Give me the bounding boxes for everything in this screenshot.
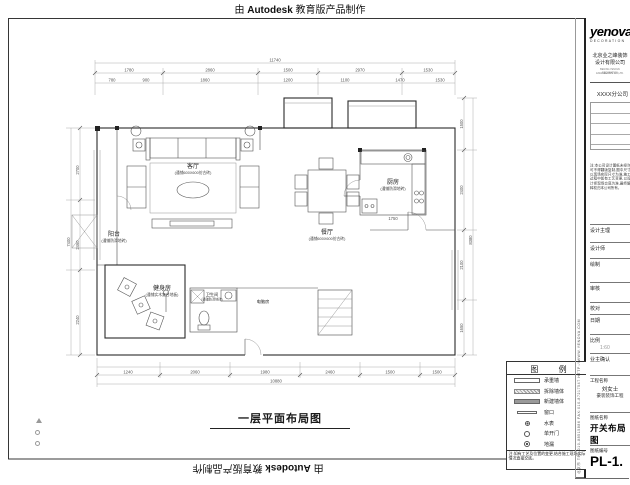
company-name-cn: 北京业之峰装饰 <box>590 52 630 59</box>
svg-text:(通铺600X600仿古砖): (通铺600X600仿古砖) <box>309 236 346 241</box>
field-proofread: 校对 <box>590 302 630 312</box>
stamp-text: 教育版产品制作 <box>293 5 366 16</box>
stairs <box>318 290 352 335</box>
svg-text:1240: 1240 <box>123 370 133 375</box>
stamp-text: 由 <box>311 462 324 473</box>
drawing-number-value: PL-1. <box>590 454 630 469</box>
field-designer: 设计师 <box>590 242 630 252</box>
dining-room-furniture <box>295 158 359 224</box>
svg-text:2700: 2700 <box>75 165 80 175</box>
living-room-furniture <box>127 126 259 228</box>
disclaimer-note: 注:本公司设计图纸未经许可不得翻版复制,图中尺寸以现场实际尺寸为准,施工过程中如… <box>590 164 630 191</box>
single-door-icon <box>510 431 544 437</box>
bathroom-fixtures <box>191 290 236 330</box>
scale-value: 1:60 <box>600 345 630 351</box>
branch-name: XXXX分公司 <box>590 90 630 98</box>
field-date: 日期 <box>590 314 630 324</box>
svg-text:1980: 1980 <box>260 370 270 375</box>
dimension-lines <box>66 60 477 387</box>
svg-text:(通铺实木复合地板): (通铺实木复合地板) <box>146 292 180 297</box>
svg-text:2460: 2460 <box>325 370 335 375</box>
room-label-gym: 健身房 <box>153 284 171 292</box>
field-scale: 比例 <box>590 334 630 344</box>
company-logo-sub: DECORATION <box>590 39 630 43</box>
stamp-brand: Autodesk <box>265 462 311 473</box>
field-owner-confirm: 业主确认 <box>590 353 630 363</box>
svg-text:10880: 10880 <box>270 379 282 384</box>
svg-text:1500: 1500 <box>385 370 395 375</box>
gym-equipment <box>118 278 169 330</box>
svg-text:1200: 1200 <box>283 78 293 83</box>
drawing-number-label: 图纸编号 <box>590 445 630 454</box>
divider <box>590 82 630 83</box>
window-swatch <box>510 411 544 414</box>
revision-table <box>590 102 630 150</box>
svg-text:11740: 11740 <box>269 58 281 63</box>
svg-text:2400: 2400 <box>459 185 464 195</box>
corner-mark-circle <box>35 430 40 435</box>
autodesk-stamp-bottom: 由 Autodesk 教育版产品制作 <box>178 462 338 477</box>
drawing-name-label: 图纸名称 <box>590 412 630 421</box>
floor-drain-icon <box>510 441 544 447</box>
room-label-living: 客厅 <box>187 162 199 170</box>
autodesk-stamp-top: 由 Autodesk 教育版产品制作 <box>0 1 600 16</box>
room-label-balcony: 阳台 <box>108 230 120 238</box>
svg-text:2970: 2970 <box>355 68 365 73</box>
plan-title: 一层平面布局图 <box>210 410 350 429</box>
demolish-wall-swatch <box>510 389 544 394</box>
room-label-bath: 卫生间 <box>206 291 219 298</box>
corner-mark-circle <box>35 441 40 446</box>
svg-text:2860: 2860 <box>205 68 215 73</box>
svg-text:900: 900 <box>143 78 151 83</box>
svg-text:1470: 1470 <box>395 78 405 83</box>
corner-mark-triangle <box>36 418 42 423</box>
room-labels: 客厅 (通铺600X600仿古砖) 餐厅 (通铺600X600仿古砖) 厨房 (… <box>101 162 406 305</box>
svg-text:(通铺600X600仿古砖): (通铺600X600仿古砖) <box>175 170 212 175</box>
svg-text:1860: 1860 <box>200 78 210 83</box>
drawing-sheet: { "stamps": { "pre": "由 ", "brand": "Aut… <box>0 0 630 485</box>
stamp-text: 由 <box>234 5 247 16</box>
room-label-dining: 餐厅 <box>321 228 333 236</box>
contact-info-vertical: 北京市 TEL:010-88515886 FAX:010-87217547 HT… <box>577 24 582 474</box>
windows <box>72 103 458 310</box>
svg-text:1500: 1500 <box>432 370 442 375</box>
field-reviewer: 审核 <box>590 282 630 292</box>
svg-text:1750: 1750 <box>388 216 398 221</box>
walls <box>95 98 455 355</box>
doors <box>116 180 426 356</box>
svg-text:(通铺防滑地砖): (通铺防滑地砖) <box>201 297 222 302</box>
svg-text:2100: 2100 <box>459 260 464 270</box>
svg-text:(通铺防滑地砖): (通铺防滑地砖) <box>380 186 406 191</box>
svg-text:7400: 7400 <box>66 237 71 247</box>
room-label-kitchen: 厨房 <box>387 178 399 186</box>
original-wall-swatch <box>510 378 544 383</box>
svg-text:8380: 8380 <box>468 235 473 245</box>
kitchen-fittings <box>361 151 425 214</box>
svg-text:1500: 1500 <box>283 68 293 73</box>
svg-text:780: 780 <box>109 78 117 83</box>
project-name-value: 刘女士 <box>590 385 630 393</box>
svg-text:2060: 2060 <box>190 370 200 375</box>
dimension-numbers: 11740 1780 2860 1500 2970 1530 780 900 1… <box>66 58 473 384</box>
project-name-label: 工程名称 <box>590 375 630 384</box>
stamp-brand: Autodesk <box>247 5 293 16</box>
room-label-study: 电脑房 <box>257 298 270 305</box>
water-meter-icon <box>510 421 544 426</box>
svg-text:1100: 1100 <box>340 78 350 83</box>
company-logo: yenova <box>590 24 630 39</box>
title-block: yenova DECORATION 北京业之峰装饰 设计有限公司 BEIJING… <box>586 18 630 478</box>
svg-text:(通铺防滑地砖): (通铺防滑地砖) <box>101 238 127 243</box>
svg-text:2460: 2460 <box>75 240 80 250</box>
svg-text:1530: 1530 <box>423 68 433 73</box>
field-design-director: 设计主理 <box>590 224 630 234</box>
stamp-text: 教育版产品制作 <box>192 462 265 473</box>
svg-text:1650: 1650 <box>459 323 464 333</box>
svg-text:1530: 1530 <box>435 78 445 83</box>
new-wall-swatch <box>510 399 544 404</box>
svg-text:2240: 2240 <box>75 315 80 325</box>
field-drafter: 绘制 <box>590 258 630 268</box>
svg-text:1500: 1500 <box>459 119 464 129</box>
drawing-name-value: 开关布局图 <box>590 422 630 446</box>
svg-text:1780: 1780 <box>124 68 134 73</box>
